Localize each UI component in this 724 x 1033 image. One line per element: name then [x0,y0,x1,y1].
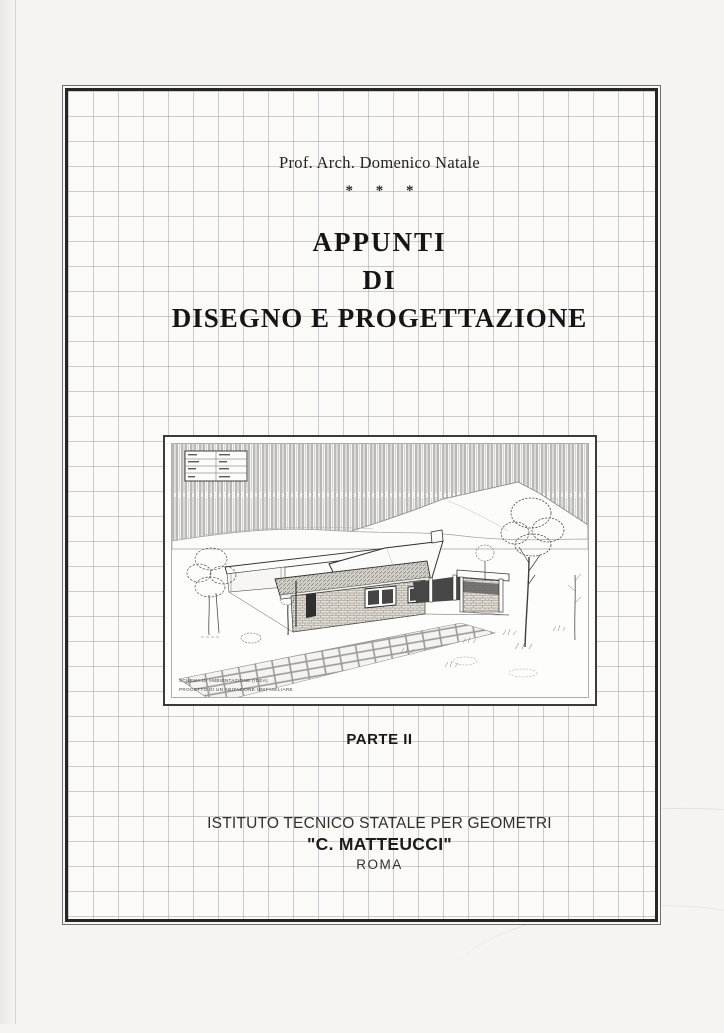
sketch-caption-line-2: PROGETTO DI UN ABITAZIONE UNIFAMILIARE [179,687,293,692]
author-line: Prof. Arch. Domenico Natale [86,153,658,173]
door [306,593,316,618]
cover-frame: Prof. Arch. Domenico Natale * * * APPUNT… [62,85,661,925]
cover-content: Prof. Arch. Domenico Natale * * * APPUNT… [86,91,658,919]
part-label: PARTE II [86,731,658,748]
school-name: "C. MATTEUCCI" [86,834,658,855]
scan-edge-line [15,0,16,1024]
sketch-caption-line-1: SCHEMA DI AMBIENTAZIONE (IDEA) [179,678,268,683]
house-sketch: SCHEMA DI AMBIENTAZIONE (IDEA) PROGETTO … [163,435,597,706]
ornament-separator: * * * [86,183,658,200]
grid-paper: Prof. Arch. Domenico Natale * * * APPUNT… [65,88,658,922]
title-line-2: DI [86,265,658,296]
title-block-table [185,451,247,481]
institution-name: ISTITUTO TECNICO STATALE PER GEOMETRI [95,815,658,833]
scan-edge-shadow [0,0,15,1024]
chimney [431,530,443,543]
scanned-cover-page: { "cover": { "author_line": "Prof. Arch.… [0,0,724,1024]
city-name: ROMA [86,857,658,872]
title-line-3: DISEGNO E PROGETTAZIONE [86,303,658,334]
title-line-1: APPUNTI [86,227,658,258]
